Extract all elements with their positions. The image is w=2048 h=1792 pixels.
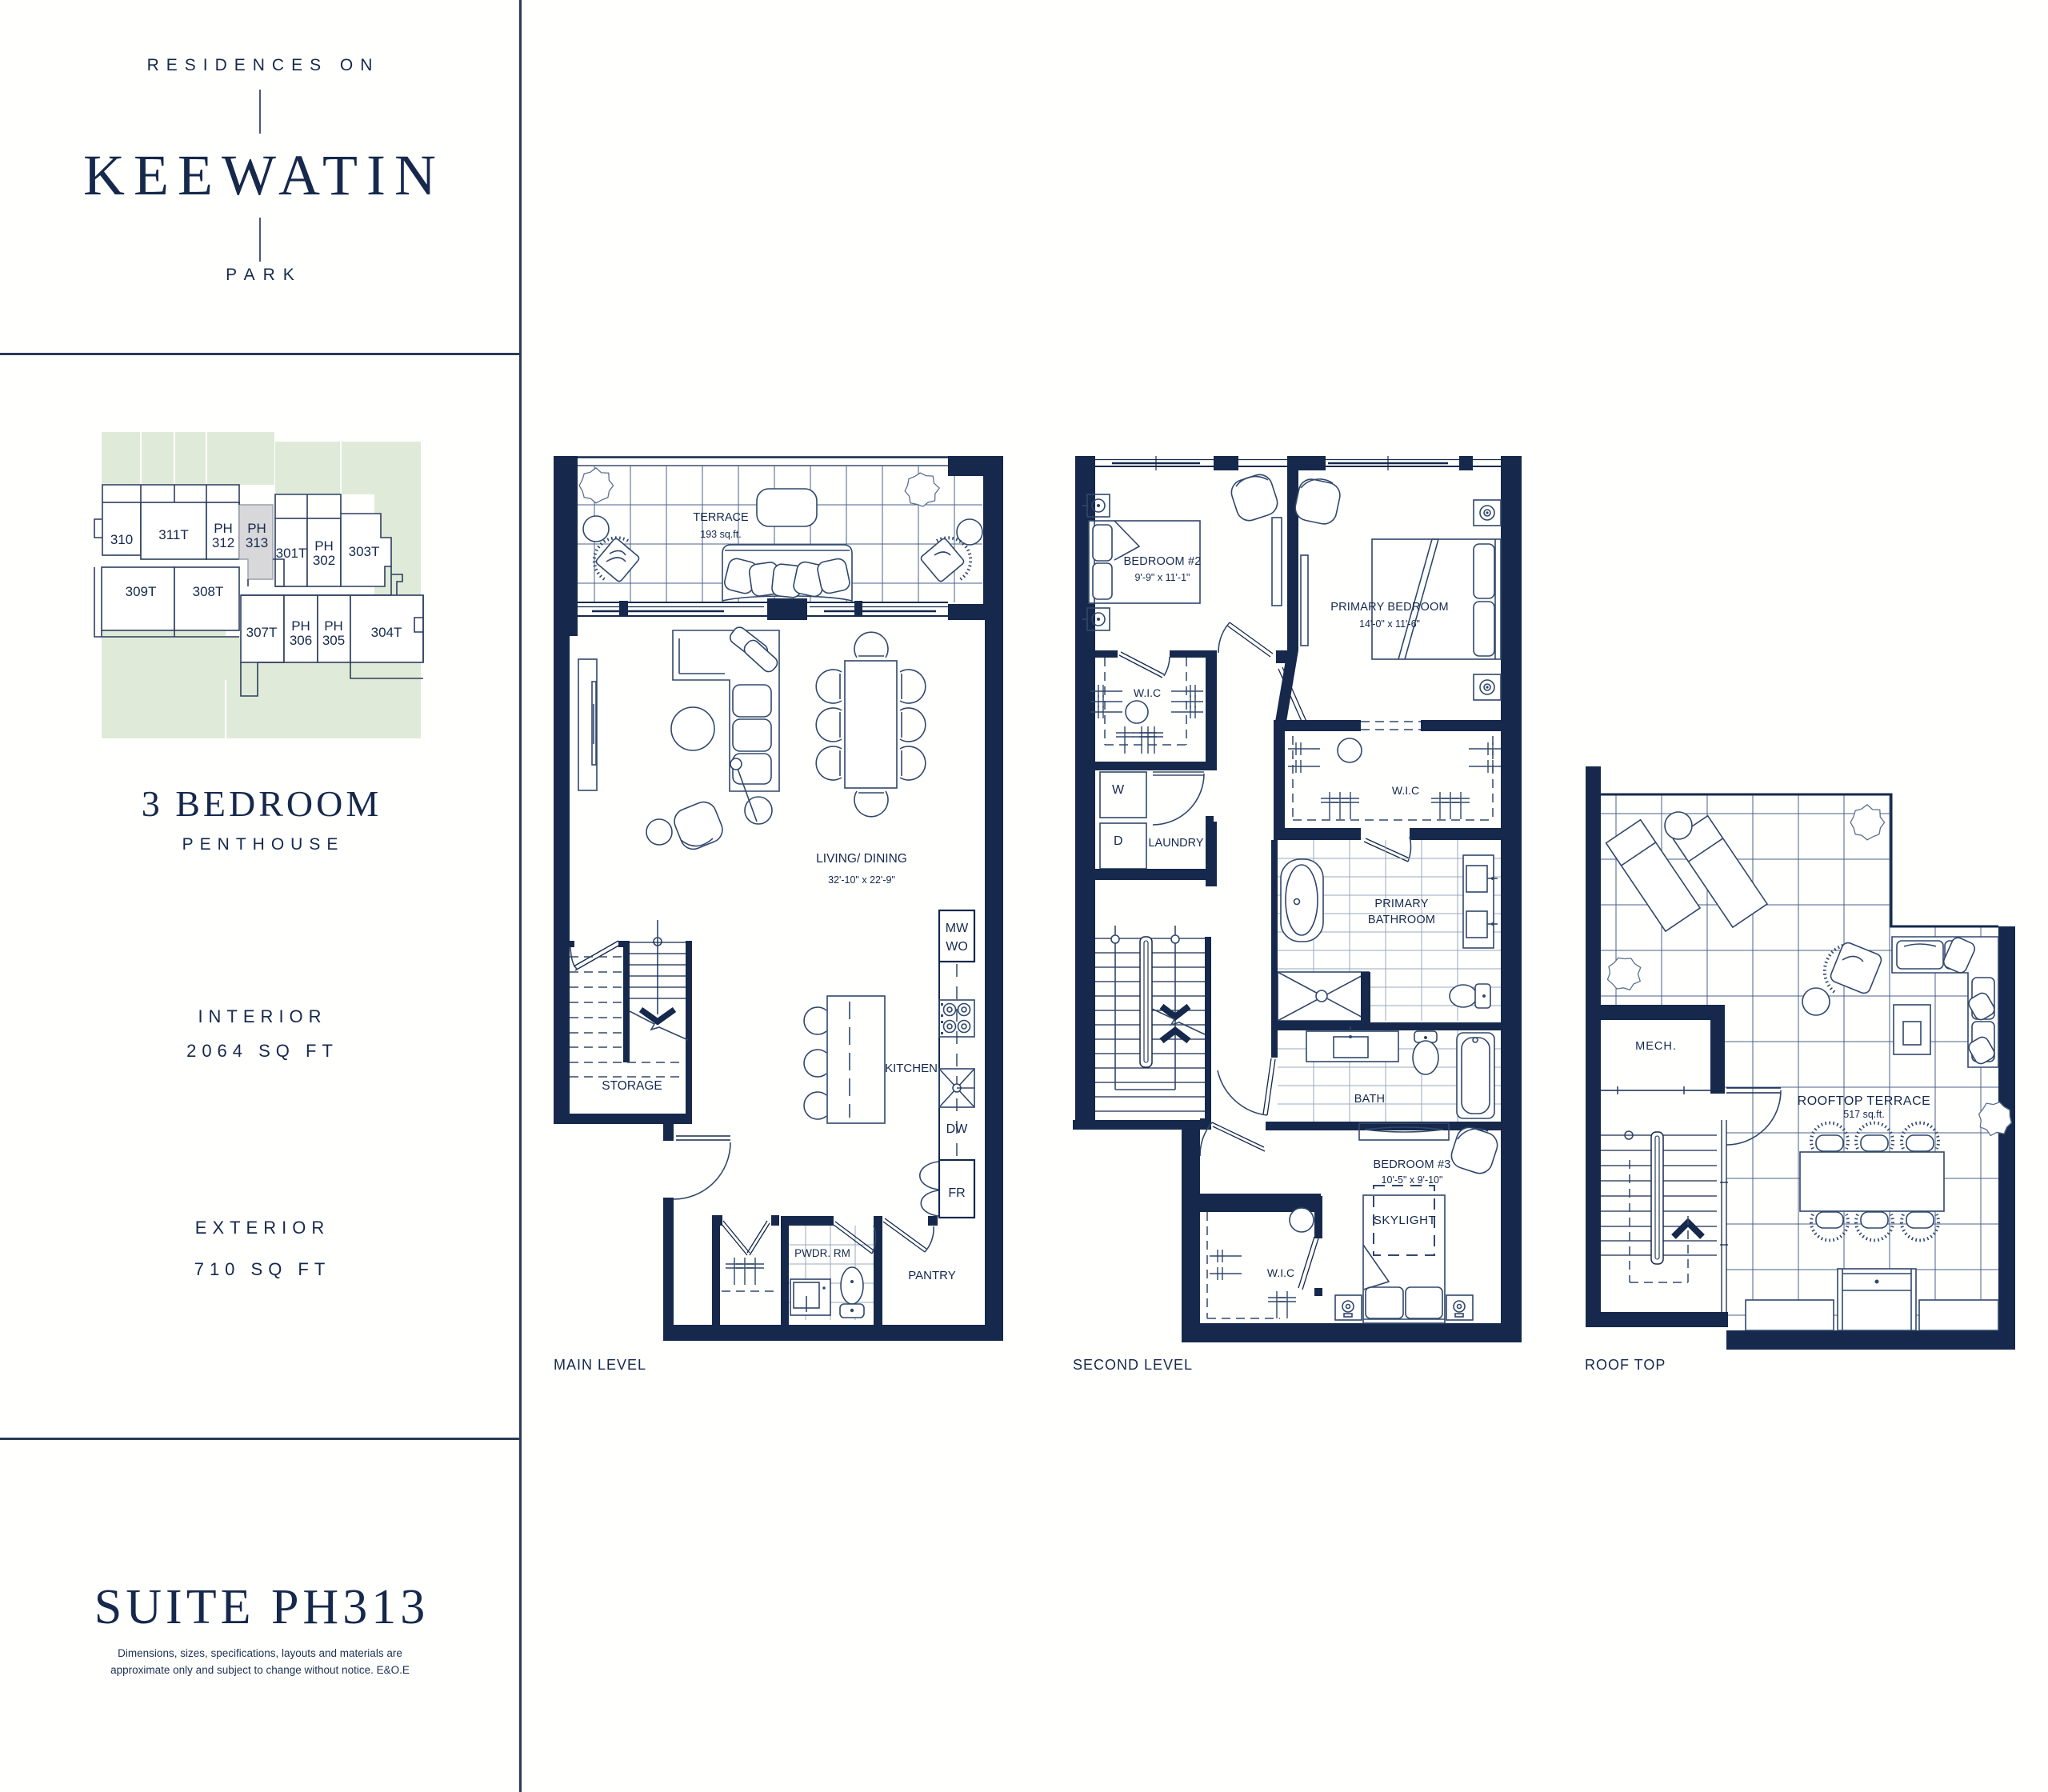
svg-text:310: 310 [110, 532, 133, 547]
svg-text:193 sq.ft.: 193 sq.ft. [700, 529, 741, 540]
svg-text:312: 312 [212, 535, 234, 550]
svg-text:MW: MW [946, 922, 969, 935]
svg-text:BATH: BATH [1354, 1093, 1385, 1106]
svg-text:SECOND LEVEL: SECOND LEVEL [1073, 1357, 1193, 1373]
svg-text:306: 306 [290, 633, 312, 648]
svg-text:W.I.C: W.I.C [1134, 686, 1161, 699]
svg-text:PH: PH [247, 521, 266, 536]
svg-text:309T: 309T [126, 584, 157, 599]
svg-text:305: 305 [322, 633, 345, 648]
svg-text:302: 302 [313, 553, 335, 568]
svg-text:KITCHEN: KITCHEN [885, 1062, 938, 1075]
svg-text:PRIMARY BEDROOM: PRIMARY BEDROOM [1330, 601, 1449, 614]
svg-text:308T: 308T [193, 584, 224, 599]
svg-text:10'-5" x 9'-10": 10'-5" x 9'-10" [1382, 1174, 1443, 1186]
svg-text:PANTRY: PANTRY [908, 1269, 955, 1282]
svg-text:STORAGE: STORAGE [602, 1079, 662, 1093]
svg-text:MAIN LEVEL: MAIN LEVEL [554, 1357, 646, 1373]
svg-text:PH: PH [291, 618, 310, 634]
svg-text:303T: 303T [349, 544, 380, 559]
svg-text:BEDROOM #2: BEDROOM #2 [1123, 555, 1201, 568]
svg-text:LIVING/ DINING: LIVING/ DINING [816, 852, 907, 866]
svg-text:9'-9" x 11'-1": 9'-9" x 11'-1" [1134, 572, 1190, 583]
svg-text:PH: PH [214, 521, 233, 536]
svg-text:BEDROOM #3: BEDROOM #3 [1373, 1158, 1450, 1171]
svg-text:WO: WO [946, 940, 968, 954]
svg-text:LAUNDRY: LAUNDRY [1148, 837, 1203, 850]
svg-text:307T: 307T [246, 625, 278, 640]
svg-text:MECH.: MECH. [1635, 1040, 1677, 1053]
svg-text:W: W [1112, 783, 1125, 797]
svg-text:304T: 304T [371, 625, 402, 640]
svg-text:311T: 311T [158, 527, 189, 542]
svg-text:PH: PH [324, 618, 343, 634]
svg-text:PRIMARY: PRIMARY [1374, 898, 1428, 910]
svg-text:TERRACE: TERRACE [693, 511, 749, 524]
svg-text:14'-0" x 11'-6": 14'-0" x 11'-6" [1359, 618, 1420, 630]
svg-text:SKYLIGHT: SKYLIGHT [1374, 1214, 1436, 1227]
svg-text:301T: 301T [276, 546, 307, 561]
svg-text:BATHROOM: BATHROOM [1368, 914, 1435, 926]
svg-text:ROOFTOP TERRACE: ROOFTOP TERRACE [1798, 1094, 1931, 1108]
svg-text:PH: PH [314, 538, 334, 554]
svg-text:ROOF TOP: ROOF TOP [1585, 1357, 1666, 1373]
svg-text:DW: DW [946, 1122, 969, 1136]
svg-text:W.I.C: W.I.C [1392, 784, 1419, 797]
svg-text:517 sq.ft.: 517 sq.ft. [1843, 1109, 1884, 1120]
svg-text:W.I.C: W.I.C [1267, 1266, 1294, 1279]
svg-text:313: 313 [246, 535, 268, 550]
svg-text:PWDR. RM: PWDR. RM [794, 1247, 850, 1259]
svg-text:32'-10" x 22'-9": 32'-10" x 22'-9" [828, 874, 895, 886]
svg-text:FR: FR [948, 1186, 965, 1200]
svg-text:D: D [1114, 834, 1123, 848]
